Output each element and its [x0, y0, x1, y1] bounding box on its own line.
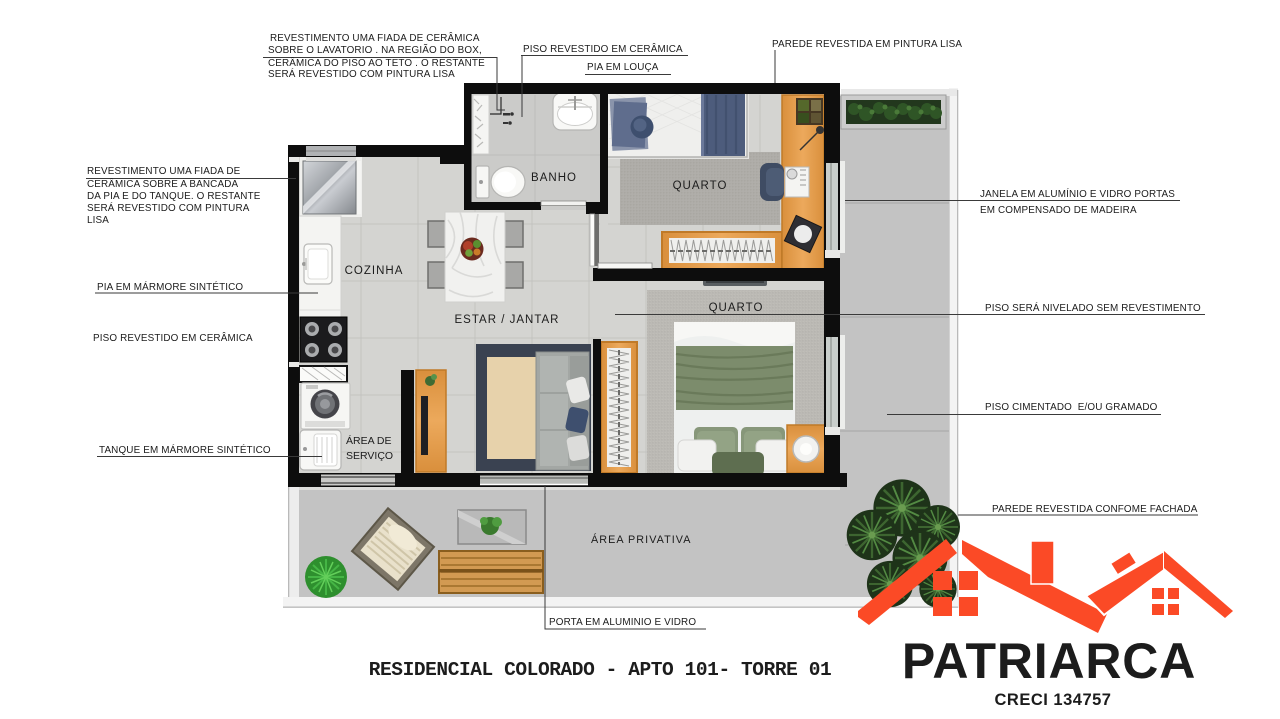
- svg-text:ÁREA DE: ÁREA DE: [346, 434, 392, 447]
- svg-text:JANELA EM ALUMÍNIO E VIDRO POR: JANELA EM ALUMÍNIO E VIDRO PORTAS: [980, 189, 1175, 200]
- svg-text:ÁREA PRIVATIVA: ÁREA PRIVATIVA: [591, 533, 692, 546]
- svg-text:PORTA EM ALUMINIO E VIDRO: PORTA EM ALUMINIO E VIDRO: [549, 617, 696, 628]
- svg-text:PISO REVESTIDO EM CERÂMICA: PISO REVESTIDO EM CERÂMICA: [523, 44, 683, 55]
- svg-text:SERÁ REVESTIDO COM PINTURA: SERÁ REVESTIDO COM PINTURA: [87, 203, 250, 214]
- svg-text:TANQUE EM MÁRMORE SINTÉTICO: TANQUE EM MÁRMORE SINTÉTICO: [99, 445, 271, 456]
- svg-text:LISA: LISA: [87, 215, 109, 226]
- svg-text:PISO SERÁ NIVELADO SEM REVESTI: PISO SERÁ NIVELADO SEM REVESTIMENTO: [985, 303, 1201, 314]
- svg-text:QUARTO: QUARTO: [673, 180, 728, 192]
- svg-text:CERÂMICA SOBRE A BANCADA: CERÂMICA SOBRE A BANCADA: [87, 179, 238, 190]
- svg-text:ESTAR / JANTAR: ESTAR / JANTAR: [455, 314, 560, 326]
- svg-text:DA PIA E DO TANQUE. O RESTANTE: DA PIA E DO TANQUE. O RESTANTE: [87, 191, 261, 202]
- svg-text:PISO CIMENTADO E/OU GRAMADO: PISO CIMENTADO E/OU GRAMADO: [985, 402, 1158, 413]
- svg-text:PAREDE REVESTIDA EM PINTURA LI: PAREDE REVESTIDA EM PINTURA LISA: [772, 39, 962, 50]
- svg-text:PAREDE REVESTIDA CONFOME FACHA: PAREDE REVESTIDA CONFOME FACHADA: [992, 504, 1198, 515]
- svg-text:COZINHA: COZINHA: [345, 265, 404, 277]
- svg-text:SERVIÇO: SERVIÇO: [346, 450, 393, 462]
- svg-text:EM COMPENSADO DE MADEIRA: EM COMPENSADO DE MADEIRA: [980, 205, 1137, 216]
- svg-text:CRECI 134757: CRECI 134757: [995, 691, 1112, 709]
- svg-text:REVESTIMENTO UMA FIADA DE CERÂ: REVESTIMENTO UMA FIADA DE CERÂMICA: [270, 33, 480, 44]
- svg-text:PIA EM MÁRMORE SINTÉTICO: PIA EM MÁRMORE SINTÉTICO: [97, 282, 243, 293]
- svg-text:PATRIARCA: PATRIARCA: [902, 633, 1196, 689]
- svg-text:CERÂMICA DO PISO AO TETO . O R: CERÂMICA DO PISO AO TETO . O RESTANTE: [268, 58, 485, 69]
- svg-text:SOBRE O LAVATORIO . NA REGIÃO: SOBRE O LAVATORIO . NA REGIÃO DO BOX,: [268, 45, 482, 56]
- svg-text:SERÁ REVESTIDO COM PINTURA LIS: SERÁ REVESTIDO COM PINTURA LISA: [268, 69, 455, 80]
- svg-text:PIA EM LOUÇA: PIA EM LOUÇA: [587, 62, 659, 73]
- svg-text:QUARTO: QUARTO: [709, 302, 764, 314]
- svg-text:RESIDENCIAL COLORADO - APTO 10: RESIDENCIAL COLORADO - APTO 101- TORRE 0…: [369, 659, 832, 681]
- svg-text:REVESTIMENTO UMA FIADA DE: REVESTIMENTO UMA FIADA DE: [87, 166, 241, 177]
- svg-text:BANHO: BANHO: [531, 172, 577, 184]
- svg-text:PISO REVESTIDO EM CERÂMICA: PISO REVESTIDO EM CERÂMICA: [93, 333, 253, 344]
